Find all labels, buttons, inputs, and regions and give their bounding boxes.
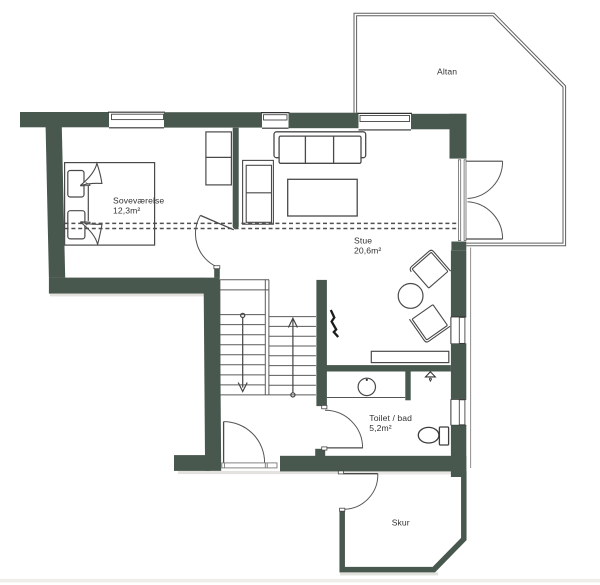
svg-text:Stue: Stue	[354, 236, 372, 246]
svg-text:Skur: Skur	[392, 518, 410, 528]
svg-text:Soveværelse: Soveværelse	[113, 196, 164, 206]
svg-text:Altan: Altan	[437, 67, 457, 77]
svg-text:12,3m²: 12,3m²	[113, 206, 140, 216]
svg-text:Toilet / bad: Toilet / bad	[369, 413, 412, 423]
svg-text:20,6m²: 20,6m²	[354, 246, 381, 256]
svg-text:5,2m²: 5,2m²	[369, 423, 392, 433]
